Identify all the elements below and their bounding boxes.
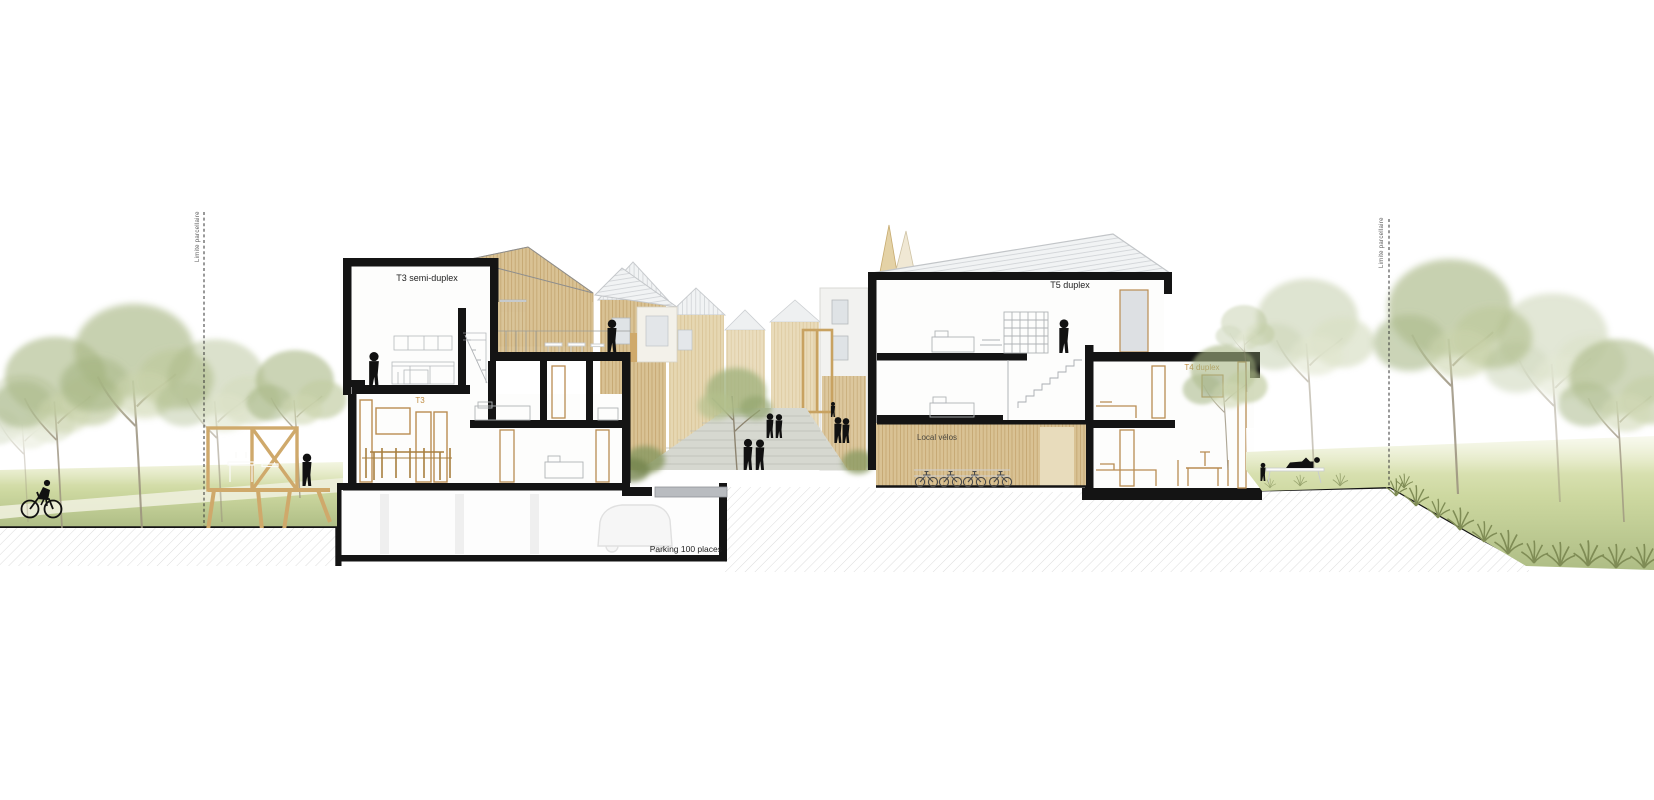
t3-semi-duplex-label: T3 semi-duplex [396,273,458,283]
street-deck-slab [655,487,727,497]
parking-label: Parking 100 places [650,544,722,554]
unit-t3-semi-duplex: T3 semi-duplex [343,258,499,395]
architectural-section-canvas: Limite parcellaire Parking 100 places [0,0,1654,800]
right-roof [872,234,1170,273]
local-velos-label: Local vélos [917,433,957,442]
left-building-section: T3 semi-duplex T3 [343,247,677,491]
limite-parcellaire-left-label: Limite parcellaire [195,211,201,262]
t5-duplex-label: T5 duplex [1050,280,1090,290]
limite-parcellaire-right-label: Limite parcellaire [1379,217,1385,268]
section-drawing: Limite parcellaire Parking 100 places [0,0,1654,800]
t3-label: T3 [415,396,425,405]
t5-glass-door [1120,290,1148,352]
local-velos-room: Local vélos [876,420,1087,487]
parking-garage: Parking 100 places [337,483,727,566]
